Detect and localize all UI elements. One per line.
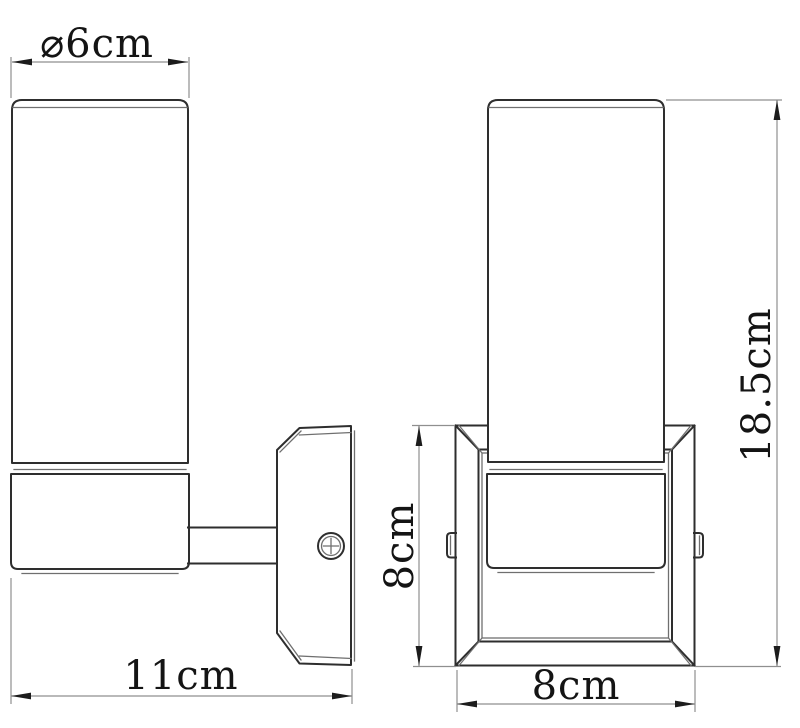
arrow-right-icon — [332, 693, 352, 700]
arrow-down-icon — [774, 646, 781, 666]
glass-shade-side — [12, 100, 188, 463]
metal-base-side — [11, 474, 189, 569]
technical-drawing-canvas: ⌀6cm 11cm 8cm 18.5cm 8cm — [0, 0, 800, 728]
dimension-label-backplate-width: 8cm — [532, 663, 621, 709]
dimension-diameter: ⌀6cm — [11, 21, 189, 98]
dimension-label-backplate-height: 8cm — [377, 502, 423, 591]
wall-lamp-drawing: ⌀6cm 11cm 8cm 18.5cm 8cm — [0, 0, 800, 728]
arrow-right-icon — [675, 701, 695, 708]
screw-head-icon — [318, 533, 344, 559]
dimension-backplate-width: 8cm — [457, 663, 695, 712]
arrow-left-icon — [12, 59, 32, 66]
arrow-left-icon — [457, 701, 477, 708]
arrow-down-icon — [416, 646, 423, 666]
dimension-label-total-width: 11cm — [123, 653, 238, 699]
arrow-up-icon — [416, 426, 423, 446]
dimension-backplate-height: 8cm — [377, 426, 456, 667]
dimension-label-diameter: ⌀6cm — [40, 21, 154, 67]
dimension-label-total-height: 18.5cm — [734, 307, 780, 462]
metal-base-front — [487, 474, 665, 568]
arrow-up-icon — [774, 100, 781, 120]
side-view — [11, 100, 355, 665]
arrow-right-icon — [168, 59, 188, 66]
arrow-left-icon — [11, 693, 31, 700]
front-view — [447, 100, 703, 666]
